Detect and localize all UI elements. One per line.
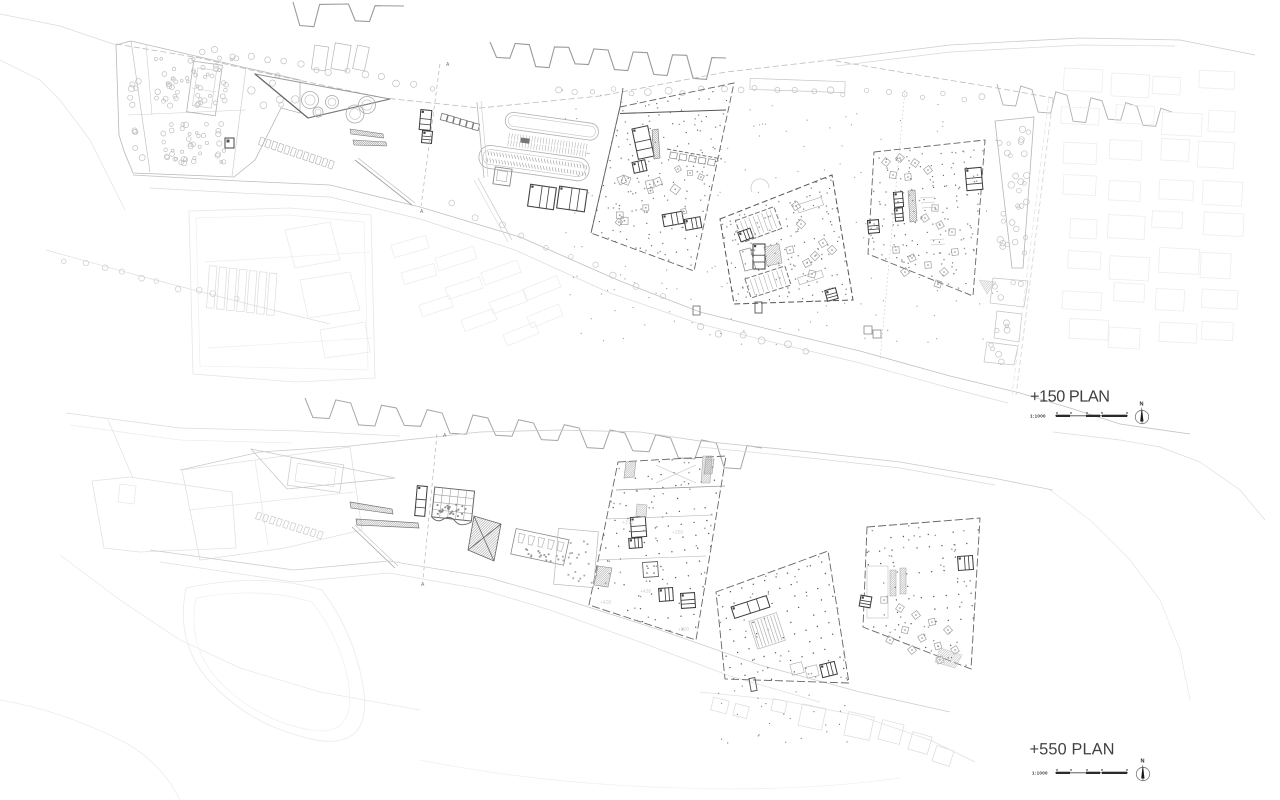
- svg-text:+500: +500: [678, 627, 689, 633]
- svg-text:1:1000: 1:1000: [1032, 771, 1048, 776]
- svg-text:+350: +350: [672, 530, 683, 536]
- svg-text:N: N: [1140, 401, 1144, 407]
- svg-text:1:1000: 1:1000: [1030, 414, 1046, 419]
- svg-text:+400: +400: [600, 600, 611, 606]
- svg-text:+430: +430: [640, 589, 651, 595]
- svg-text:N: N: [1141, 758, 1145, 764]
- svg-text:+310: +310: [622, 520, 633, 526]
